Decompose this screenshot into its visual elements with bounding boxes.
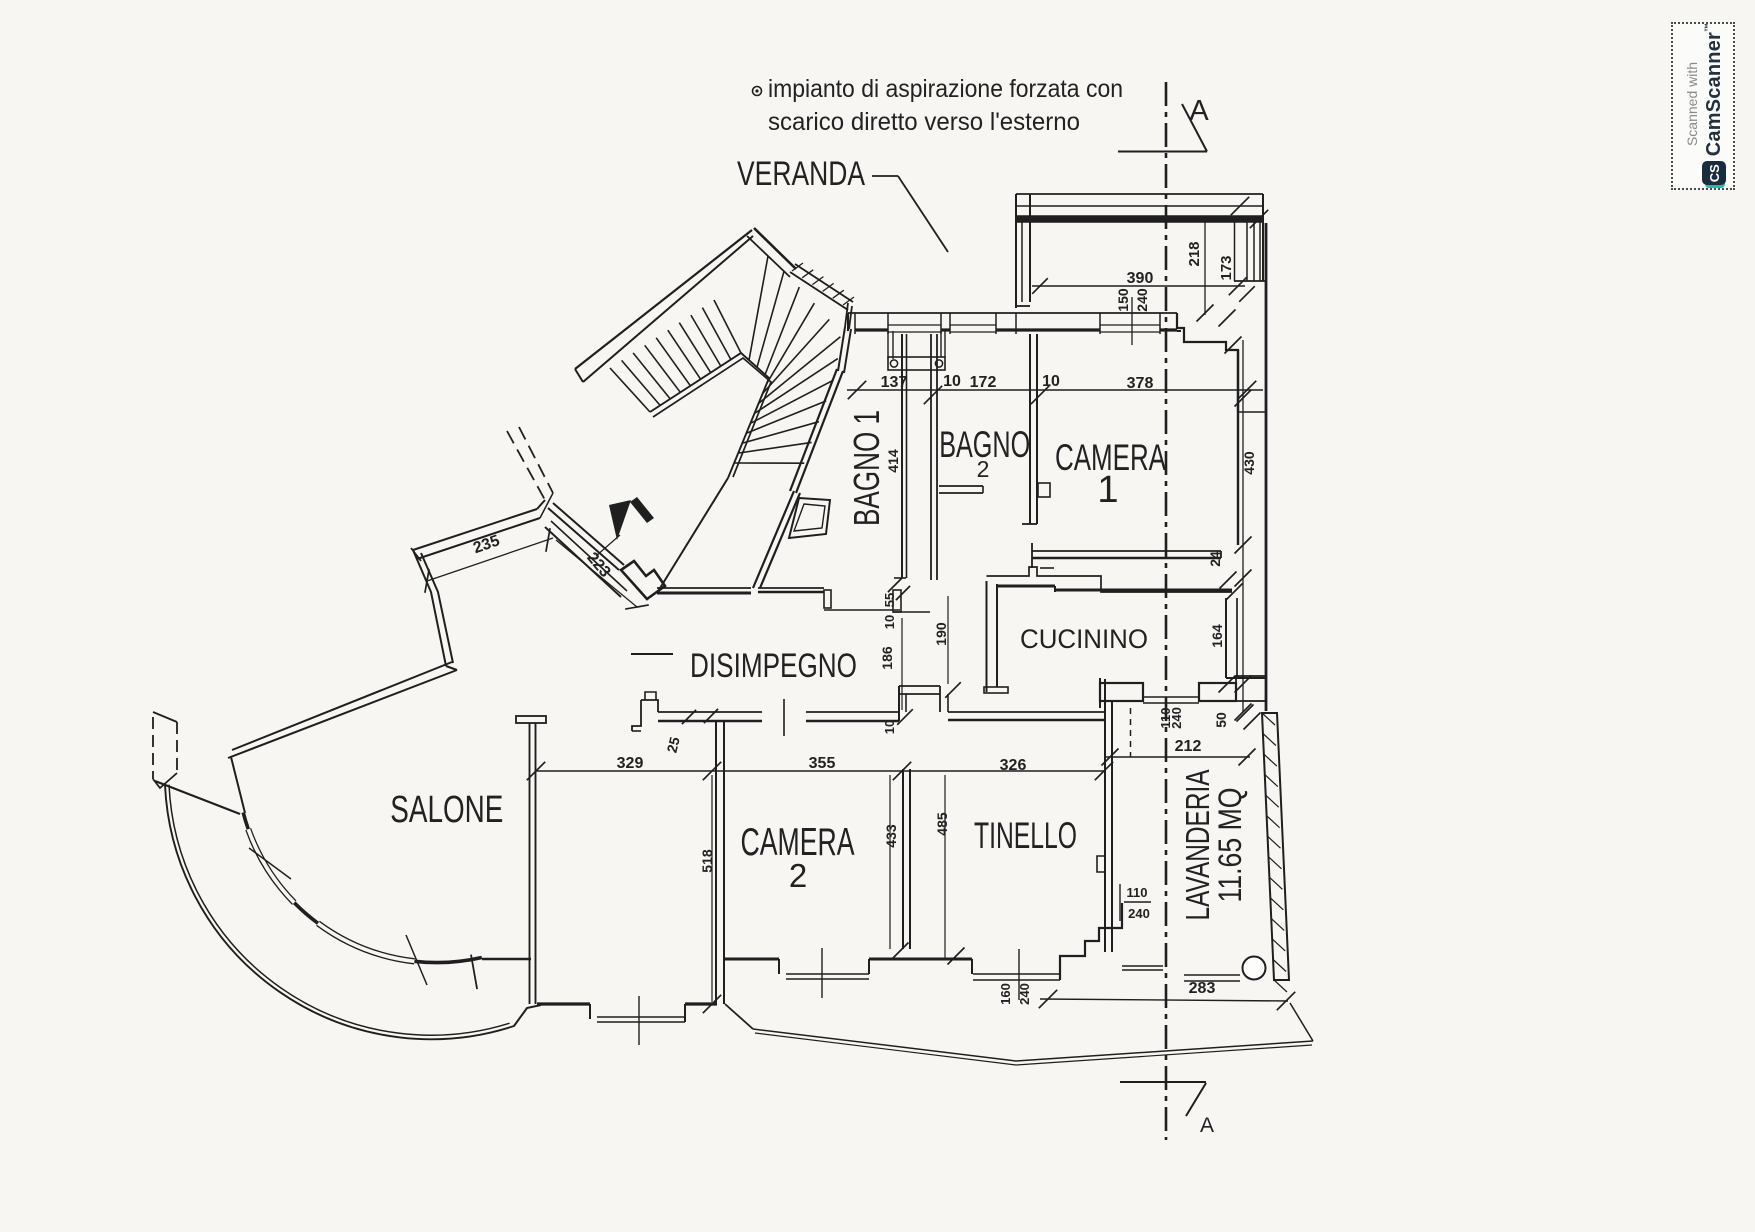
svg-text:137: 137 [881,374,908,391]
svg-text:BAGNO 1: BAGNO 1 [846,410,887,526]
svg-text:150: 150 [1115,288,1131,312]
svg-text:10: 10 [882,720,897,734]
svg-text:164: 164 [1209,624,1225,648]
svg-text:240: 240 [1128,906,1150,921]
svg-text:326: 326 [1000,757,1027,774]
svg-text:A: A [1189,95,1209,127]
svg-text:TINELLO: TINELLO [974,815,1077,856]
svg-text:A: A [1200,1114,1214,1137]
svg-text:110: 110 [1127,885,1148,900]
svg-text:329: 329 [617,755,644,772]
svg-text:CUCININO: CUCININO [1020,624,1148,654]
svg-text:390: 390 [1127,270,1154,287]
svg-text:LAVANDERIA: LAVANDERIA [1179,770,1216,921]
svg-text:173: 173 [1218,255,1235,280]
svg-text:355: 355 [809,755,836,772]
svg-text:433: 433 [883,824,899,848]
svg-text:485: 485 [934,812,950,836]
svg-text:240: 240 [1134,288,1150,312]
svg-text:10: 10 [882,615,897,629]
svg-text:218: 218 [1186,241,1203,266]
svg-text:235: 235 [471,532,502,557]
svg-text:190: 190 [933,622,949,646]
svg-text:2: 2 [789,857,807,894]
svg-text:172: 172 [970,374,997,391]
svg-text:518: 518 [699,849,715,873]
svg-text:scarico diretto verso l'estern: scarico diretto verso l'esterno [768,108,1080,136]
svg-text:55: 55 [882,593,897,607]
svg-text:impianto di aspirazione forzat: impianto di aspirazione forzata con [768,75,1123,103]
svg-text:24: 24 [1207,551,1223,567]
svg-text:283: 283 [1189,980,1216,997]
svg-text:1: 1 [1097,469,1118,511]
svg-text:378: 378 [1127,375,1154,392]
svg-text:50: 50 [1213,712,1229,728]
svg-text:10: 10 [1042,373,1060,390]
svg-text:SALONE: SALONE [390,789,503,831]
svg-text:11.65 MQ: 11.65 MQ [1212,788,1248,903]
svg-text:414: 414 [885,449,901,473]
svg-text:212: 212 [1175,738,1202,755]
svg-text:240: 240 [1169,707,1184,729]
svg-text:186: 186 [879,646,895,670]
svg-text:25: 25 [664,735,683,754]
svg-text:VERANDA: VERANDA [737,155,865,193]
svg-text:240: 240 [1017,983,1032,1005]
svg-text:430: 430 [1241,451,1257,475]
svg-text:DISIMPEGNO: DISIMPEGNO [690,647,857,685]
svg-text:10: 10 [943,373,961,390]
svg-text:2: 2 [977,456,990,482]
svg-text:160: 160 [998,983,1013,1005]
